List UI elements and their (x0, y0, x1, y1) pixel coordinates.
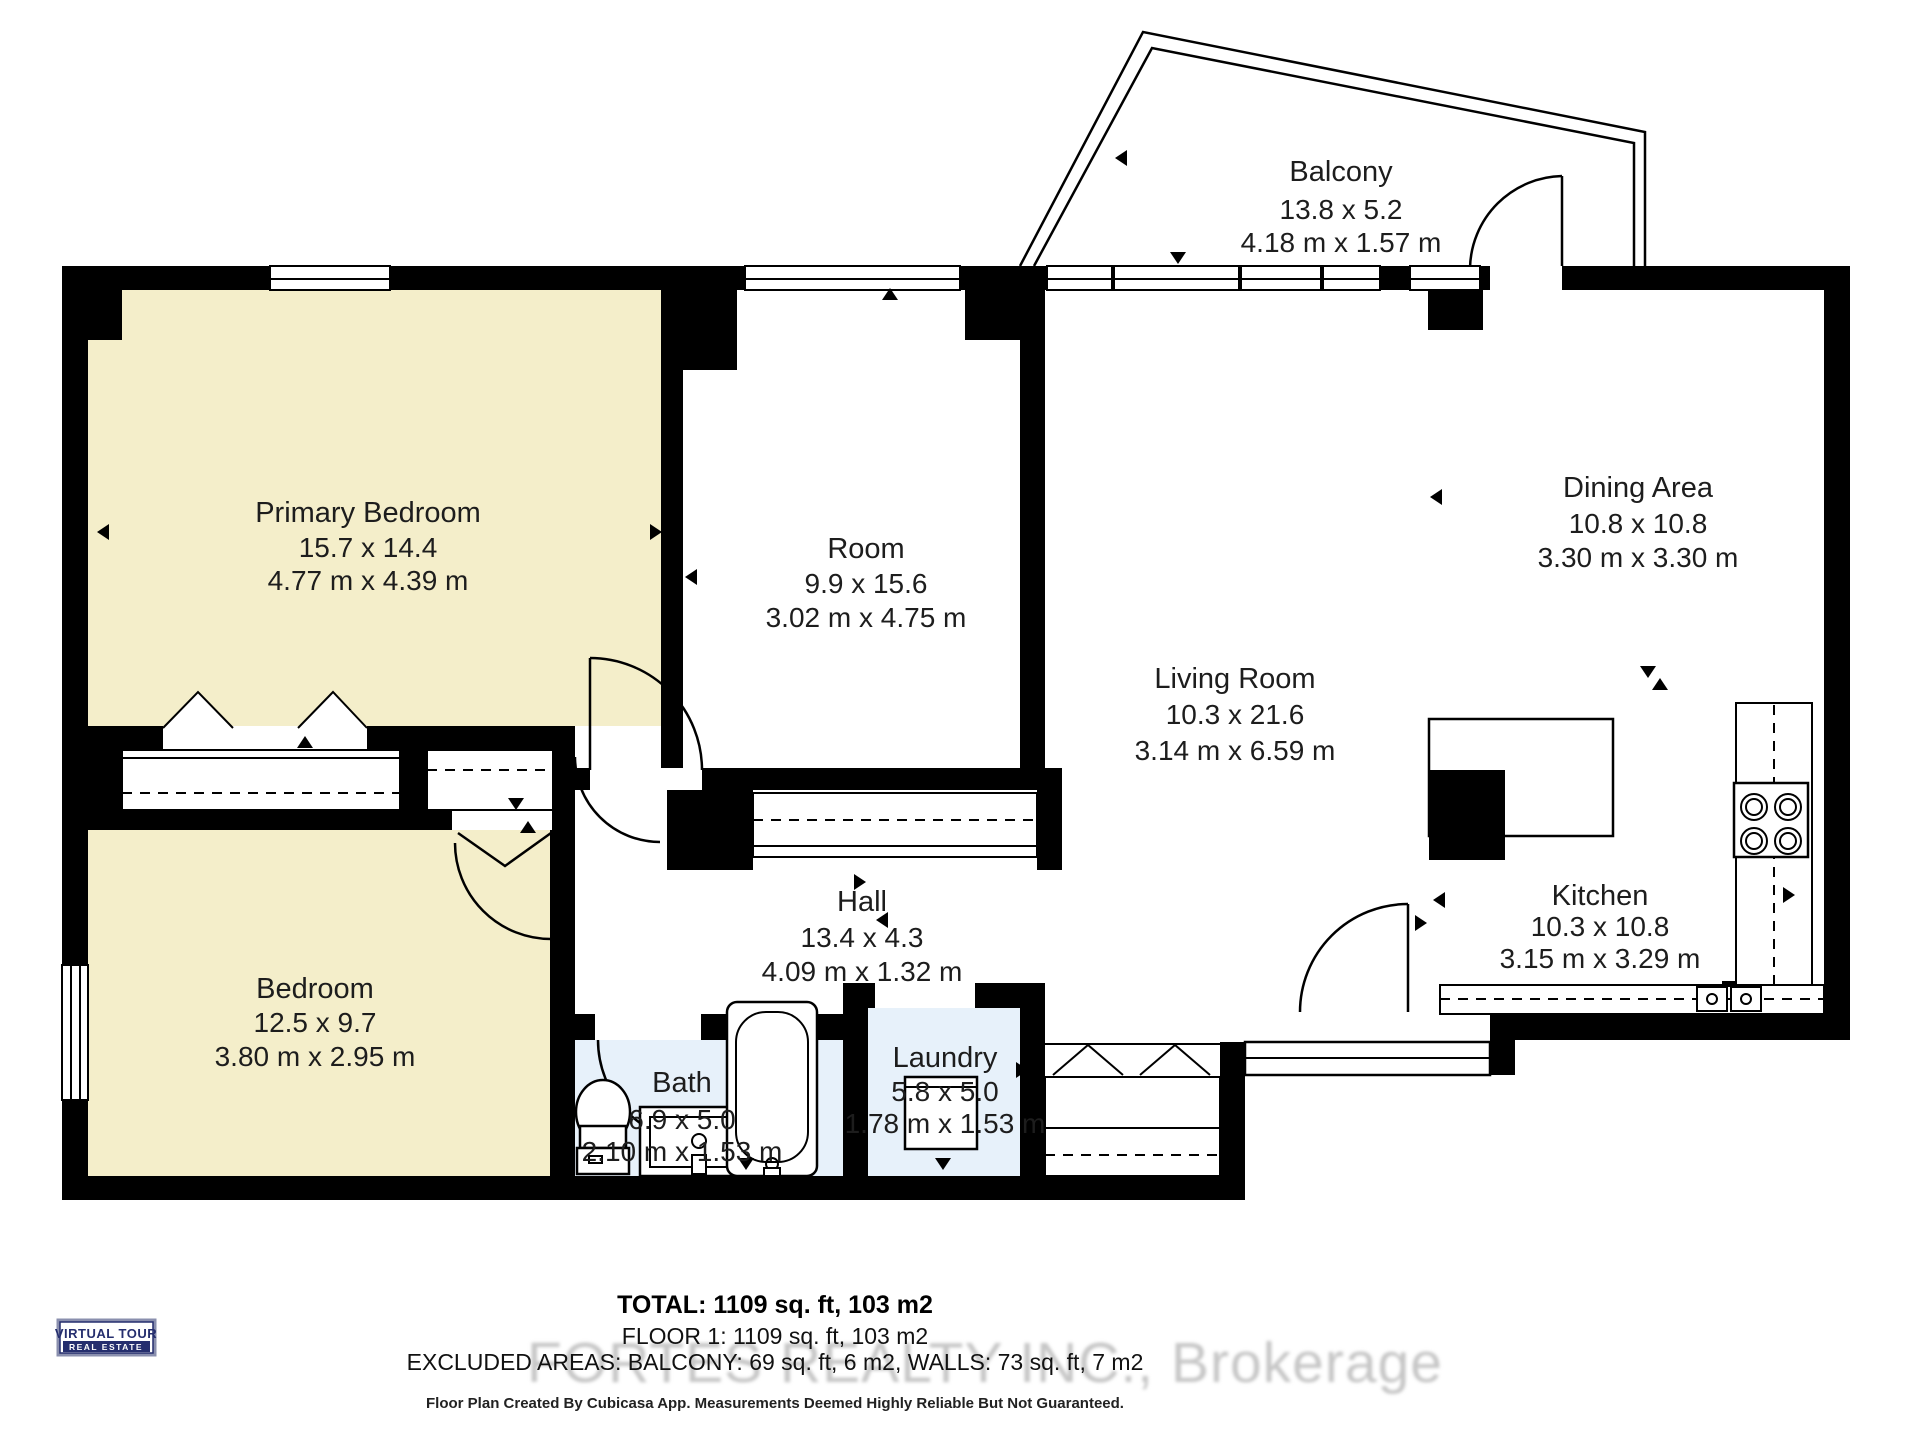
footer-disclaimer-line: Floor Plan Created By Cubicasa App. Meas… (426, 1395, 1124, 1412)
primary-bedroom-dims-m: 4.77 m x 4.39 m (268, 565, 469, 596)
balcony-door-opening (1490, 266, 1562, 290)
primary-corner-chunk (88, 290, 122, 340)
footer-total-line: TOTAL: 1109 sq. ft, 103 m2 (617, 1291, 933, 1319)
bath-label: Bath (652, 1067, 712, 1099)
window-primary-bedroom (270, 266, 390, 290)
dimension-arrow (1430, 489, 1442, 505)
primary-bedroom-dims-ft: 15.7 x 14.4 (299, 532, 438, 563)
bedroom-door-opening (452, 810, 552, 830)
laundry-label: Laundry (893, 1042, 998, 1074)
bath-door-opening (595, 1014, 701, 1040)
window-bedroom-left (62, 965, 88, 1100)
dimension-arrow (1170, 252, 1186, 264)
kitchen-label: Kitchen (1552, 880, 1649, 912)
kitchen-dims-m: 3.15 m x 3.29 m (1500, 943, 1701, 974)
dimension-arrow (1115, 150, 1127, 166)
floor-plan-canvas: Balcony 13.8 x 5.2 4.18 m x 1.57 m Prima… (0, 0, 1920, 1440)
window-living-balcony (1047, 266, 1380, 290)
right-wall (1824, 266, 1850, 1040)
balcony-dims-ft: 13.8 x 5.2 (1280, 194, 1403, 225)
room-label: Room (827, 533, 904, 565)
dimension-arrow (685, 569, 697, 585)
bedroom-label: Bedroom (256, 973, 374, 1005)
kitchen-dims-ft: 10.3 x 10.8 (1531, 911, 1670, 942)
footer-excluded-line: EXCLUDED AREAS: BALCONY: 69 sq. ft, 6 m2… (407, 1349, 1144, 1375)
hall-label: Hall (837, 886, 887, 918)
primary-bedroom-label: Primary Bedroom (255, 497, 481, 529)
closet-row-bottom-band (88, 810, 452, 830)
dining-area-dims-m: 3.30 m x 3.30 m (1538, 542, 1739, 573)
hall-dims-m: 4.09 m x 1.32 m (762, 956, 963, 987)
kitchen-top-chunk (1428, 290, 1483, 330)
floor-plan-page: Balcony 13.8 x 5.2 4.18 m x 1.57 m Prima… (0, 0, 1920, 1440)
dining-area-label: Dining Area (1563, 472, 1714, 504)
footer-floor-line: FLOOR 1: 1109 sq. ft, 103 m2 (622, 1323, 928, 1349)
window-room (745, 266, 960, 290)
hall-closet-right-wall (1037, 768, 1062, 870)
balcony-dims-m: 4.18 m x 1.57 m (1241, 227, 1442, 258)
bath-dims-m: 2.10 m x 1.53 m (582, 1136, 783, 1167)
entry-door-arc (1300, 904, 1408, 1012)
room-dims-ft: 9.9 x 15.6 (805, 568, 928, 599)
closet-row-top-band-a (88, 726, 163, 750)
hall-closet (753, 793, 1037, 857)
hall-top-chunk (667, 790, 753, 870)
entry-corner-wall (1490, 1014, 1515, 1075)
laundry-dims-m: 1.78 m x 1.53 m (845, 1108, 1046, 1139)
room-right-wall (1020, 290, 1045, 768)
window-entry (1245, 1042, 1490, 1075)
logo-line2: REAL ESTATE (69, 1342, 143, 1352)
bedroom-dims-m: 3.80 m x 2.95 m (215, 1041, 416, 1072)
virtual-tour-logo: VIRTUAL TOUR REAL ESTATE (55, 1320, 157, 1355)
stove (1734, 783, 1808, 857)
dining-area-dims-ft: 10.8 x 10.8 (1569, 508, 1708, 539)
bedroom-dims-ft: 12.5 x 9.7 (254, 1007, 377, 1038)
primary-room-divider (661, 290, 683, 768)
bath-laundry-divider (843, 983, 868, 1176)
room-dims-m: 3.02 m x 4.75 m (766, 602, 967, 633)
dimension-arrow (297, 736, 313, 748)
balcony-door-arc (1470, 176, 1562, 268)
entry-closet (1045, 1044, 1220, 1176)
kitchen-bottom-wall (1490, 1014, 1850, 1040)
laundry-dims-ft: 5.8 x 5.0 (891, 1076, 998, 1107)
living-room-dims-ft: 10.3 x 21.6 (1166, 699, 1305, 730)
dimension-arrow (1640, 666, 1656, 678)
kitchen-island (1429, 719, 1613, 860)
balcony-label: Balcony (1289, 156, 1393, 188)
bedroom-closet (427, 750, 553, 810)
room-door-opening (590, 768, 702, 790)
living-room-dims-m: 3.14 m x 6.59 m (1135, 735, 1336, 766)
kitchen-counter-bottom (1440, 985, 1824, 1014)
window-kitchen-top (1410, 266, 1480, 290)
closet-row-top-band-b (367, 726, 560, 750)
logo-line1: VIRTUAL TOUR (55, 1326, 157, 1341)
kitchen-counter-right (1736, 703, 1812, 1014)
living-room-label: Living Room (1154, 663, 1315, 695)
entry-left-stub-wall (1220, 1042, 1245, 1200)
hall-dims-ft: 13.4 x 4.3 (801, 922, 924, 953)
dimension-arrow (1652, 678, 1668, 690)
dimension-arrow (1415, 915, 1427, 931)
dimension-arrow (1433, 892, 1445, 908)
laundry-right-wall (1020, 983, 1045, 1200)
bottom-left-wall (62, 1176, 1245, 1200)
bath-dims-ft: 6.9 x 5.0 (628, 1104, 735, 1135)
